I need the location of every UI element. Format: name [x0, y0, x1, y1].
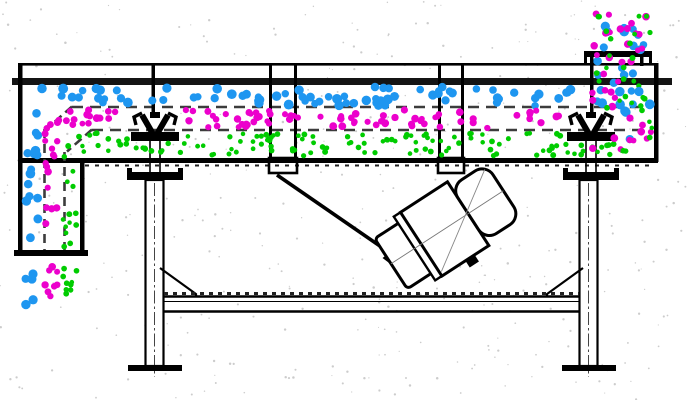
particle-dot — [338, 122, 346, 130]
particle-dot — [142, 164, 144, 166]
particle-dot — [15, 376, 17, 378]
particle-dot — [612, 95, 618, 101]
particle-dot — [405, 377, 407, 379]
particle-dot — [615, 79, 621, 85]
particle-dot — [627, 41, 633, 47]
particle-dot — [423, 146, 429, 152]
particle-dot — [278, 263, 280, 265]
left-leg-foot — [128, 365, 182, 371]
particle-dot — [626, 114, 633, 121]
particle-dot — [352, 22, 353, 23]
particle-dot — [387, 116, 389, 118]
particle-dot — [264, 118, 270, 124]
particle-dot — [550, 308, 552, 310]
particle-dot — [64, 231, 69, 236]
particle-dot — [64, 41, 67, 44]
particle-dot — [583, 85, 585, 87]
particle-dot — [408, 151, 413, 156]
particle-dot — [214, 123, 221, 130]
particle-dot — [227, 152, 232, 157]
particle-dot — [554, 143, 559, 148]
particle-dot — [54, 269, 60, 275]
particle-dot — [575, 54, 576, 55]
particle-dot — [43, 125, 50, 132]
particle-dot — [665, 249, 667, 251]
particle-dot — [85, 106, 92, 113]
particle-dot — [507, 262, 510, 265]
particle-dot — [534, 90, 543, 99]
particle-dot — [432, 114, 438, 120]
particle-dot — [48, 263, 56, 271]
particle-dot — [353, 283, 355, 285]
particle-dot — [356, 145, 362, 151]
particle-dot — [51, 283, 58, 290]
particle-dot — [677, 181, 679, 183]
particle-dot — [388, 35, 389, 36]
particle-dot — [33, 131, 42, 140]
particle-dot — [563, 142, 568, 147]
particle-dot — [594, 70, 600, 76]
particle-dot — [604, 291, 605, 292]
particle-dot — [440, 5, 441, 6]
particle-dot — [387, 305, 389, 307]
particle-dot — [608, 36, 614, 42]
particle-dot — [362, 141, 367, 146]
particle-dot — [639, 108, 645, 114]
particle-dot — [489, 86, 497, 94]
particle-dot — [238, 92, 246, 100]
particle-dot — [313, 6, 314, 7]
particle-dot — [70, 153, 72, 155]
particle-dot — [213, 360, 215, 362]
particle-dot — [337, 91, 339, 93]
particle-dot — [7, 24, 9, 26]
particle-dot — [88, 142, 89, 143]
particle-dot — [589, 97, 596, 104]
particle-dot — [112, 109, 118, 115]
particle-dot — [497, 142, 502, 147]
particle-dot — [376, 96, 385, 105]
particle-dot — [593, 57, 602, 66]
particle-dot — [550, 152, 556, 158]
vibration-motor — [370, 159, 528, 302]
particle-dot — [9, 90, 11, 92]
particle-dot — [322, 156, 323, 157]
particle-dot — [558, 111, 559, 112]
particle-dot — [483, 304, 484, 305]
particle-dot — [513, 112, 520, 119]
particle-dot — [180, 317, 182, 319]
particle-dot — [357, 29, 359, 31]
particle-dot — [323, 263, 325, 265]
particle-dot — [675, 56, 677, 58]
particle-dot — [359, 237, 361, 239]
particle-dot — [284, 376, 286, 378]
particle-dot — [263, 132, 269, 138]
particle-dot — [186, 134, 191, 139]
particle-dot — [234, 115, 241, 122]
feed-inlet-right-cap — [649, 57, 652, 63]
particle-dot — [378, 389, 380, 391]
particle-dot — [506, 136, 511, 141]
particle-dot — [595, 150, 600, 155]
deck-bottom-plate — [18, 158, 658, 163]
particle-dot — [259, 142, 264, 147]
particle-dot — [460, 392, 462, 394]
particle-dot — [209, 152, 214, 157]
particle-dot — [61, 217, 66, 222]
particle-dot — [294, 85, 303, 94]
particle-dot — [456, 140, 462, 146]
particle-dot — [519, 41, 520, 42]
particle-dot — [470, 119, 477, 126]
particle-dot — [569, 330, 571, 332]
particle-dot — [678, 20, 680, 22]
particle-dot — [241, 132, 246, 137]
particle-dot — [541, 366, 543, 368]
particle-dot — [196, 354, 198, 356]
particle-dot — [684, 186, 686, 188]
particle-dot — [178, 26, 180, 28]
particle-dot — [136, 142, 138, 144]
particle-dot — [180, 113, 181, 114]
particle-dot — [127, 378, 129, 380]
left-gusset — [160, 268, 196, 296]
particle-dot — [210, 173, 211, 174]
particle-dot — [491, 47, 493, 49]
particle-dot — [272, 91, 281, 100]
particle-dot — [385, 84, 393, 92]
particle-dot — [644, 289, 645, 290]
particle-dot — [65, 179, 70, 184]
particle-dot — [499, 75, 501, 77]
particle-dot — [66, 133, 68, 135]
particle-dot — [127, 294, 129, 296]
particle-dot — [23, 149, 31, 157]
particle-dot — [607, 269, 609, 271]
particle-dot — [578, 142, 584, 148]
particle-dot — [567, 345, 569, 347]
left-spring-cap — [150, 112, 160, 118]
particle-dot — [415, 22, 417, 24]
particle-dot — [223, 111, 229, 117]
particle-dot — [347, 141, 352, 146]
particle-dot — [166, 198, 168, 200]
particle-dot — [53, 202, 55, 204]
particle-dot — [518, 245, 520, 247]
particle-dot — [437, 124, 444, 130]
particle-dot — [452, 135, 457, 140]
particle-dot — [102, 110, 104, 112]
particle-dot — [434, 179, 436, 181]
particle-dot — [596, 14, 602, 20]
particle-dot — [396, 287, 397, 288]
particle-dot — [537, 119, 544, 126]
particle-dot — [194, 138, 196, 140]
particle-dot — [86, 215, 88, 217]
motor-assembly — [277, 159, 528, 302]
particle-dot — [100, 51, 101, 52]
particle-dot — [80, 144, 84, 148]
particle-dot — [460, 56, 462, 58]
particle-dot — [282, 121, 285, 124]
particle-dot — [473, 85, 481, 93]
particle-dot — [305, 14, 306, 15]
feed-inlet-left-cap — [584, 57, 587, 63]
particle-dot — [365, 318, 367, 320]
particle-dot — [67, 108, 73, 114]
particle-dot — [429, 68, 431, 70]
particle-dot — [254, 197, 256, 199]
particle-dot — [201, 314, 203, 316]
particle-dot — [566, 85, 576, 95]
particle-dot — [320, 144, 326, 150]
particle-dot — [320, 171, 322, 173]
particle-dot — [38, 177, 41, 180]
particle-dot — [575, 381, 577, 383]
particle-dot — [624, 14, 626, 16]
particle-dot — [635, 262, 637, 264]
particle-dot — [484, 125, 490, 131]
particle-dot — [357, 329, 358, 330]
particle-dot — [294, 369, 296, 371]
particle-dot — [141, 254, 143, 256]
particle-dot — [510, 89, 518, 97]
particle-dot — [227, 89, 237, 99]
particle-dot — [26, 169, 36, 179]
particle-dot — [600, 71, 607, 78]
particle-dot — [558, 88, 559, 89]
particle-dot — [191, 393, 193, 395]
particle-dot — [669, 24, 671, 26]
right-leg-top-flange — [563, 172, 619, 180]
particle-dot — [26, 233, 35, 242]
particle-dot — [208, 317, 210, 319]
particle-dot — [289, 287, 291, 289]
particle-dot — [74, 268, 80, 274]
particle-dot — [634, 87, 643, 96]
particle-dot — [595, 6, 596, 7]
particle-dot — [0, 285, 1, 286]
particle-dot — [230, 230, 231, 231]
particle-dot — [229, 363, 231, 365]
particle-dot — [32, 109, 41, 118]
particle-dot — [252, 316, 254, 318]
particle-dot — [181, 219, 183, 221]
motor-brace — [277, 175, 390, 253]
particle-dot — [474, 364, 476, 366]
particle-dot — [446, 87, 454, 95]
particle-dot — [524, 131, 529, 136]
particle-dot — [31, 146, 41, 156]
particle-dot — [525, 29, 527, 31]
particle-dot — [380, 174, 382, 176]
particle-dot — [617, 25, 625, 33]
particle-dot — [557, 133, 563, 139]
particle-dot — [236, 124, 242, 130]
particle-dot — [208, 250, 210, 252]
particle-dot — [70, 184, 75, 189]
diagram-canvas — [0, 0, 690, 400]
particle-dot — [594, 52, 600, 58]
particle-dot — [269, 148, 275, 154]
particle-dot — [630, 381, 631, 382]
particle-dot — [65, 143, 71, 149]
particle-dot — [69, 121, 76, 128]
particle-dot — [653, 261, 655, 263]
particle-dot — [254, 134, 259, 139]
particle-dot — [94, 130, 100, 136]
particle-dot — [507, 364, 508, 365]
particle-dot — [311, 140, 316, 145]
particle-dot — [80, 121, 86, 127]
particle-dot — [117, 142, 123, 148]
particle-dot — [95, 397, 97, 399]
particle-dot — [657, 179, 659, 181]
particle-dot — [503, 102, 504, 103]
particle-dot — [411, 115, 419, 123]
particle-dot — [456, 108, 464, 116]
particle-dot — [514, 322, 516, 324]
particle-dot — [611, 141, 617, 147]
particle-dot — [420, 342, 422, 344]
particle-dot — [125, 216, 127, 218]
particle-dot — [58, 84, 68, 94]
particle-dot — [214, 375, 215, 376]
particle-dot — [602, 125, 604, 127]
particle-dot — [229, 147, 233, 151]
particle-dot — [103, 262, 104, 263]
particle-dot — [494, 356, 495, 357]
particle-dot — [604, 143, 610, 149]
particle-dot — [61, 244, 67, 250]
particle-dot — [329, 122, 337, 130]
particle-dot — [504, 385, 506, 387]
particle-dot — [105, 115, 112, 122]
particle-dot — [337, 115, 345, 123]
particle-dot — [325, 93, 333, 101]
particle-dot — [607, 53, 612, 58]
particle-dot — [624, 362, 626, 364]
particle-dot — [604, 105, 610, 111]
particle-dot — [173, 144, 175, 146]
particle-dot — [262, 245, 263, 246]
particle-dot — [380, 112, 387, 119]
particle-dot — [599, 145, 604, 150]
particle-dot — [672, 24, 674, 26]
particle-dot — [331, 375, 332, 376]
particle-dot — [190, 24, 191, 25]
particle-dot — [409, 384, 411, 386]
particle-dot — [290, 148, 295, 153]
particle-dot — [282, 203, 284, 205]
particle-dot — [620, 148, 626, 154]
particle-dot — [621, 65, 627, 71]
particle-dot — [111, 56, 113, 58]
particle-dot — [390, 92, 399, 101]
particle-dot — [414, 140, 419, 145]
chute-right-wall — [80, 162, 85, 254]
particle-dot — [323, 141, 324, 142]
particle-dot — [641, 219, 643, 221]
particle-dot — [548, 341, 549, 342]
particle-dot — [405, 95, 406, 96]
particle-dot — [638, 269, 640, 271]
particle-dot — [484, 274, 486, 276]
particle-dot — [623, 94, 629, 100]
particle-dot — [115, 334, 117, 336]
particle-dot — [265, 138, 269, 142]
particle-dot — [66, 211, 72, 217]
particle-dot — [274, 33, 276, 35]
particle-dot — [113, 86, 121, 94]
particle-dot — [602, 87, 609, 94]
particle-dot — [189, 146, 191, 148]
particle-dot — [21, 387, 23, 389]
particle-dot — [9, 378, 11, 380]
particle-dot — [630, 55, 636, 61]
particle-dot — [50, 151, 57, 158]
particle-dot — [301, 131, 307, 137]
particle-dot — [457, 118, 464, 125]
particle-dot — [208, 19, 210, 21]
particle-dot — [685, 126, 686, 127]
particle-dot — [353, 68, 355, 70]
particle-dot — [590, 42, 597, 49]
particle-dot — [101, 95, 108, 102]
particle-dot — [522, 289, 524, 291]
particle-dot — [531, 376, 532, 377]
particle-dot — [372, 150, 377, 155]
particle-dot — [644, 14, 649, 19]
particle-dot — [214, 213, 216, 215]
particle-dot — [75, 93, 83, 101]
particle-dot — [227, 134, 232, 139]
particle-dot — [488, 147, 494, 153]
particle-dot — [430, 139, 435, 144]
particle-dot — [173, 236, 175, 238]
particle-dot — [315, 98, 323, 106]
particle-dot — [259, 134, 264, 139]
particle-dot — [284, 100, 294, 110]
particle-dot — [361, 258, 363, 260]
particle-dot — [494, 279, 495, 280]
particle-dot — [522, 105, 523, 106]
particle-dot — [362, 96, 371, 105]
particle-dot — [27, 275, 36, 284]
particle-dot — [2, 13, 4, 15]
particle-dot — [384, 354, 386, 356]
particle-dot — [206, 41, 208, 43]
particle-dot — [51, 369, 53, 371]
particle-dot — [5, 2, 7, 4]
particle-dot — [554, 94, 563, 103]
particle-dot — [525, 24, 527, 26]
particle-dot — [399, 351, 400, 352]
particle-dot — [381, 119, 389, 127]
particle-dot — [124, 136, 130, 142]
particle-dot — [55, 117, 62, 124]
particle-dot — [117, 94, 125, 102]
particle-dot — [165, 373, 167, 375]
particle-dot — [245, 55, 246, 56]
particle-dot — [197, 209, 199, 211]
particle-dot — [70, 169, 75, 174]
particle-dot — [589, 90, 595, 96]
particle-dot — [379, 354, 380, 355]
particle-dot — [332, 69, 333, 70]
particle-dot — [436, 288, 438, 290]
